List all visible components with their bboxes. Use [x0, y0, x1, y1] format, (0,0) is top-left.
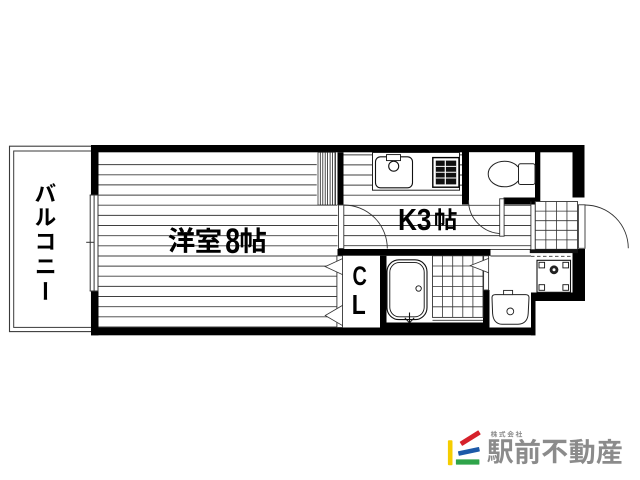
svg-text:8: 8: [225, 221, 240, 261]
svg-text:L: L: [352, 289, 366, 320]
svg-text:C: C: [353, 261, 367, 291]
svg-text:K3: K3: [398, 203, 432, 237]
